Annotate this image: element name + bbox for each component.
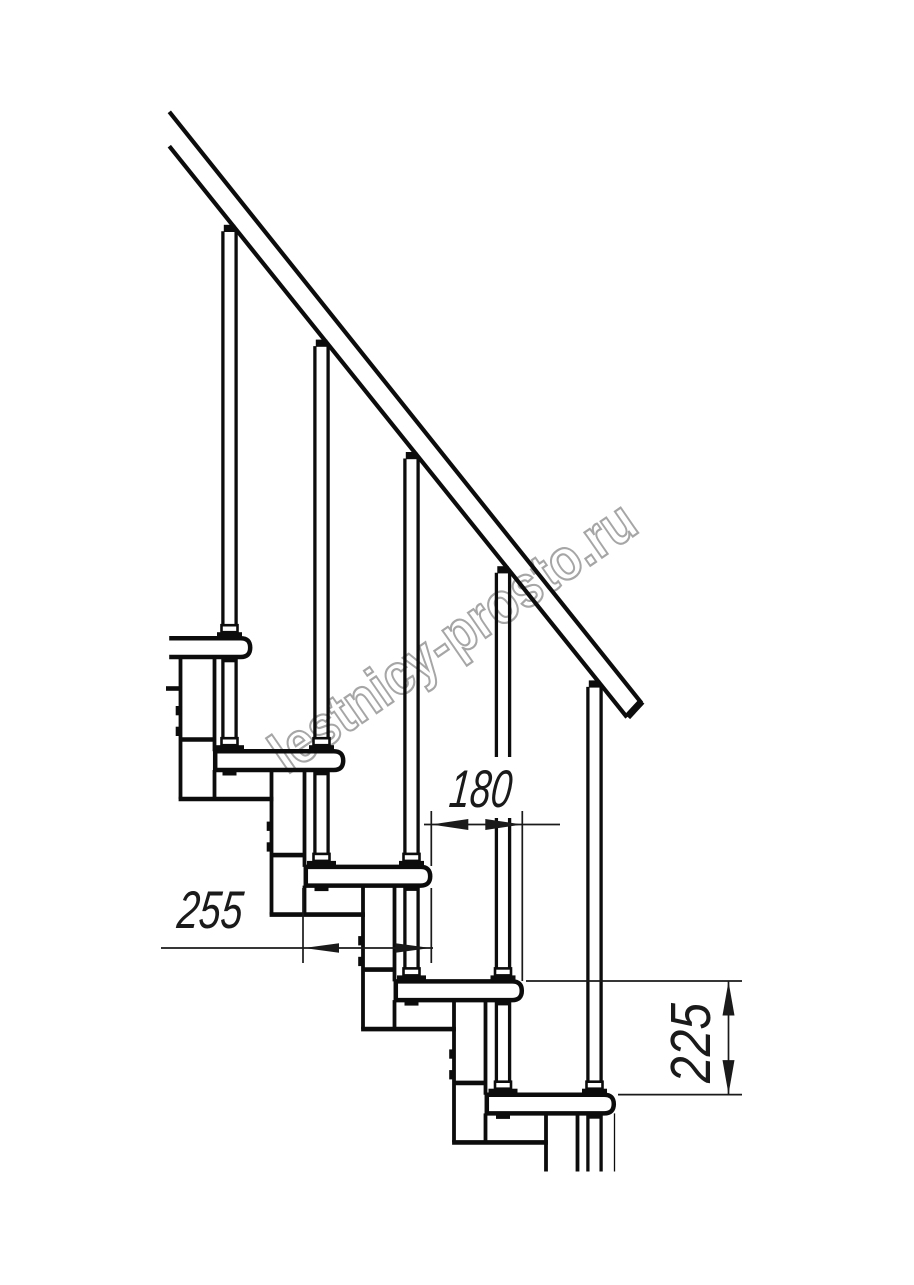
svg-text:255: 255 (174, 881, 246, 940)
svg-text:180: 180 (447, 760, 515, 819)
svg-text:225: 225 (659, 1003, 723, 1084)
